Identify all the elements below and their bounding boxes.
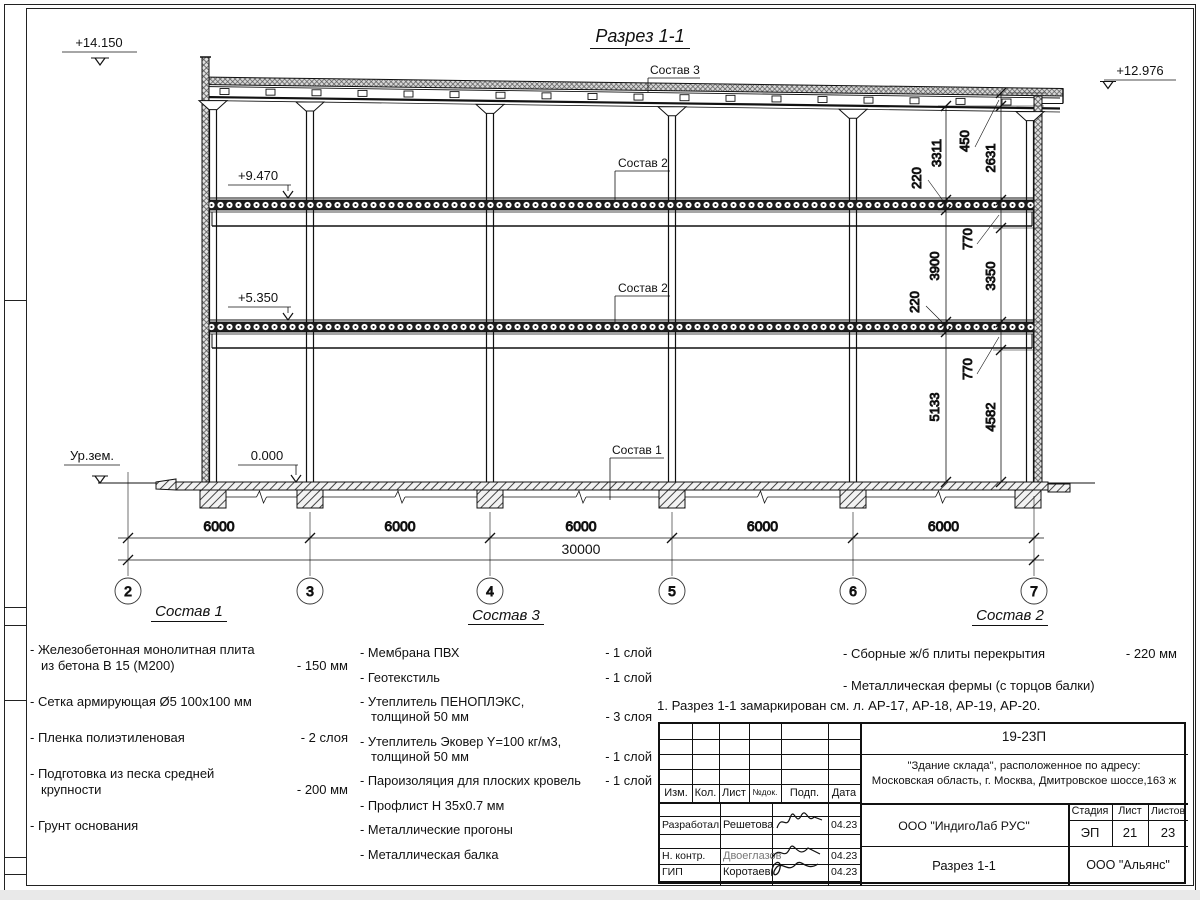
spec-item: - Металлические прогоны (360, 822, 652, 837)
stamp-name: Коротаев (723, 866, 771, 878)
spec-item-value: - 1 слой (597, 670, 652, 685)
elevation-label: +9.470 (238, 168, 278, 183)
purlin (680, 95, 689, 101)
stamp-header-col: Изм. (660, 787, 692, 799)
stamp-doc-number: 19-23П (860, 729, 1188, 744)
signature-icon (774, 810, 826, 834)
walls (200, 57, 1042, 490)
stamp-project-line1: "Здание склада", расположенное по адресу… (860, 760, 1188, 772)
stamp-line (828, 724, 829, 886)
vertical-dimension-label: 3311 (929, 139, 944, 167)
callout-label: Состав 2 (618, 281, 668, 295)
column-capital (658, 107, 686, 116)
footing (477, 490, 503, 508)
purlin (588, 93, 597, 99)
purlin (634, 94, 643, 100)
spec-item: - Утеплитель Эковер Y=100 кг/м3,толщиной… (360, 734, 652, 764)
margin-divider (4, 700, 26, 701)
drawing-sheet: Разрез 1-1 (0, 0, 1200, 900)
spec-item: - Геотекстиль- 1 слой (360, 670, 652, 685)
section-drawing: +14.150 +12.976 +9.470 +5.350 0.000 Ур.з… (0, 0, 1200, 620)
stamp-sheets-value: 23 (1148, 825, 1188, 840)
spec-item-text: - Металлическая фермы (с торцов балки) (843, 678, 1095, 694)
footing (200, 490, 226, 508)
break-mark (395, 491, 405, 503)
stamp-stage-value: ЭП (1068, 825, 1112, 840)
stamp-sheet-label: Лист (1112, 805, 1148, 817)
callouts: Состав 3 Состав 2 Состав 2 Состав 1 (610, 63, 700, 500)
stamp-header-col: Дата (828, 787, 860, 799)
stamp-line (660, 739, 860, 740)
stamp-line (860, 754, 1188, 755)
stamp-role: Разработал (662, 819, 719, 831)
stamp-stage-label: Стадия (1068, 805, 1112, 817)
stamp-drawing-name: Разрез 1-1 (860, 858, 1068, 873)
spec-items: - Мембрана ПВХ- 1 слой- Геотекстиль- 1 с… (360, 645, 652, 862)
vertical-dimension-label: 3350 (983, 262, 998, 291)
vertical-dimension-label: 770 (960, 358, 975, 380)
stamp-role: Н. контр. (662, 850, 705, 862)
span-dimension-label: 6000 (747, 518, 778, 534)
spec-item-text: - Профлист Н 35х0.7 мм (360, 798, 504, 813)
vertical-dimension-label: 2631 (983, 144, 998, 173)
spec-item-value: - 1 слой (597, 645, 652, 660)
spec-item-text: - Мембрана ПВХ (360, 645, 459, 660)
spec-block-sostav3: Состав 3 - Мембрана ПВХ- 1 слой- Геотекс… (360, 608, 652, 871)
roof (202, 77, 1063, 112)
stamp-name: Решетова (723, 819, 773, 831)
spec-item: - Подготовка из песка среднейкрупности- … (30, 766, 348, 798)
spec-item: - Утеплитель ПЕНОПЛЭКС,толщиной 50 мм- 3… (360, 694, 652, 724)
spec-heading: Состав 3 (360, 608, 652, 625)
axis-number: 4 (486, 583, 494, 599)
spec-item-text: - Металлическая балка (360, 847, 499, 862)
stamp-date: 04.23 (831, 866, 857, 878)
stamp-sheets-label: Листов (1148, 805, 1188, 817)
spec-item: - Профлист Н 35х0.7 мм (360, 798, 652, 813)
spec-item-value: - 150 мм (289, 658, 348, 674)
spec-item-value: - 3 слоя (597, 709, 652, 724)
vertical-dimension-label: 220 (909, 167, 924, 189)
purlin (910, 98, 919, 104)
callout-label: Состав 3 (650, 63, 700, 77)
spec-item-text: - Геотекстиль (360, 670, 443, 685)
span-dimension-label: 6000 (203, 518, 234, 534)
spec-item: - Металлическая балка (360, 847, 652, 862)
stamp-header-col: Лист (719, 787, 749, 799)
purlin (220, 89, 229, 95)
stamp-line (660, 784, 860, 785)
vertical-dimension-label: 770 (960, 228, 975, 250)
spec-item-text: - Грунт основания (30, 818, 138, 834)
stamp-header-col: Подп. (781, 787, 828, 799)
ground-level-label: Ур.зем. (70, 448, 114, 463)
spec-item-value: - 2 слоя (293, 730, 348, 746)
purlin (312, 90, 321, 96)
stamp-role: ГИП (662, 866, 683, 878)
break-mark (936, 491, 946, 503)
spec-item-text: - Утеплитель ПЕНОПЛЭКС,толщиной 50 мм (360, 694, 524, 724)
span-dimension-label: 6000 (928, 518, 959, 534)
spec-item-value: - 220 мм (1118, 646, 1177, 662)
purlin (496, 92, 505, 98)
drawing-note: 1. Разрез 1-1 замаркирован см. л. АР-17,… (657, 698, 1040, 713)
title-block: Изм.Кол.Лист№док.Подп.Дата Разработал Ре… (658, 722, 1186, 884)
spec-block-sostav2: Состав 2 - Сборные ж/б плиты перекрытия-… (843, 608, 1177, 710)
callout-label: Состав 1 (612, 443, 662, 457)
spec-item: - Пароизоляция для плоских кровель- 1 сл… (360, 773, 652, 788)
footing (840, 490, 866, 508)
spec-item-text: - Пленка полиэтиленовая (30, 730, 185, 746)
axis-number: 2 (124, 583, 132, 599)
stamp-line (660, 769, 860, 770)
spec-item: - Металлическая фермы (с торцов балки) (843, 678, 1177, 694)
axis-number: 6 (849, 583, 857, 599)
spec-item: - Грунт основания (30, 818, 348, 834)
stamp-project-line2: Московская область, г. Москва, Дмитровск… (860, 775, 1188, 787)
total-dimension-label: 30000 (562, 541, 601, 557)
spec-item-text: - Сетка армирующая Ø5 100х100 мм (30, 694, 252, 710)
stamp-line (860, 846, 1188, 847)
margin-divider (4, 625, 26, 626)
spec-item-text: - Металлические прогоны (360, 822, 513, 837)
margin-divider (4, 857, 26, 858)
spec-items: - Железобетонная монолитная плитаиз бето… (30, 642, 348, 834)
spec-item-text: - Железобетонная монолитная плитаиз бето… (30, 642, 255, 674)
elevation-label: +12.976 (1116, 63, 1163, 78)
stamp-date: 04.23 (831, 850, 857, 862)
axis-number: 7 (1030, 583, 1038, 599)
purlin (956, 98, 965, 104)
stamp-line (660, 881, 860, 882)
spec-item: - Пленка полиэтиленовая- 2 слоя (30, 730, 348, 746)
vertical-dimension-label: 4582 (983, 403, 998, 432)
footing (659, 490, 685, 508)
stamp-line (660, 754, 860, 755)
purlin (358, 90, 367, 96)
stamp-header-col: Кол. (692, 787, 719, 799)
spec-item: - Мембрана ПВХ- 1 слой (360, 645, 652, 660)
spec-item-text: - Сборные ж/б плиты перекрытия (843, 646, 1045, 662)
spec-item-text: - Подготовка из песка среднейкрупности (30, 766, 214, 798)
spec-item-value: - 200 мм (289, 782, 348, 798)
dims-bottom: 60006000600060006000 30000 234567 (115, 472, 1047, 604)
spec-heading: Состав 1 (30, 604, 348, 622)
break-mark (758, 491, 768, 503)
stamp-line (660, 834, 860, 835)
stamp-line (660, 864, 860, 865)
spec-block-sostav1: Состав 1 - Железобетонная монолитная пли… (30, 604, 348, 854)
elevation-label: +5.350 (238, 290, 278, 305)
floor-slab (209, 198, 1034, 226)
purlin (772, 96, 781, 102)
floor-slab (209, 320, 1034, 348)
stamp-sheet-value: 21 (1112, 825, 1148, 840)
purlin (450, 92, 459, 98)
floor-slabs (209, 198, 1034, 348)
footing (1015, 490, 1041, 508)
signature-icon (768, 856, 826, 884)
stamp-line (660, 816, 860, 817)
spec-heading-text: Состав 2 (972, 608, 1048, 626)
margin-divider (4, 874, 26, 875)
vertical-dimension-label: 450 (957, 130, 972, 152)
spec-item: - Железобетонная монолитная плитаиз бето… (30, 642, 348, 674)
stamp-line (660, 802, 860, 804)
span-dimension-label: 6000 (565, 518, 596, 534)
break-mark (576, 491, 586, 503)
vertical-dimension-label: 220 (907, 291, 922, 313)
column-capital (296, 102, 324, 111)
spec-item-text: - Пароизоляция для плоских кровель (360, 773, 581, 788)
column-capital (839, 109, 867, 118)
spec-items: - Сборные ж/б плиты перекрытия- 220 мм- … (843, 646, 1177, 694)
stamp-line (720, 802, 721, 886)
axis-number: 5 (668, 583, 676, 599)
purlin (404, 91, 413, 97)
purlin (266, 89, 275, 95)
stamp-date: 04.23 (831, 819, 857, 831)
column-capital (476, 104, 504, 113)
spec-item: - Сетка армирующая Ø5 100х100 мм (30, 694, 348, 710)
footing (297, 490, 323, 508)
hollow-core-slab (209, 322, 1034, 332)
spec-item-value: - 1 слой (597, 773, 652, 788)
elevation-label: +14.150 (75, 35, 122, 50)
purlin (726, 95, 735, 101)
stamp-header-col: №док. (749, 787, 781, 797)
spec-item-text: - Утеплитель Эковер Y=100 кг/м3,толщиной… (360, 734, 561, 764)
spec-item-value: - 1 слой (597, 749, 652, 764)
vertical-dimension-label: 3900 (927, 252, 942, 281)
span-dimension-label: 6000 (384, 518, 415, 534)
stamp-line (660, 848, 860, 849)
stamp-line (1068, 820, 1188, 821)
hollow-core-slab (209, 200, 1034, 210)
dims-right: 331122039002205133 450263177033507704582 (907, 88, 1046, 487)
sheet-edge-shadow (0, 890, 1200, 900)
purlin (818, 97, 827, 103)
vertical-dimension-label: 5133 (927, 393, 942, 422)
callout-label: Состав 2 (618, 156, 668, 170)
spec-heading-text: Состав 3 (468, 608, 544, 625)
stamp-customer: ООО "Альянс" (1068, 858, 1188, 872)
spec-item: - Сборные ж/б плиты перекрытия- 220 мм (843, 646, 1177, 662)
spec-heading: Состав 2 (843, 608, 1177, 626)
purlin (542, 93, 551, 99)
axis-number: 3 (306, 583, 314, 599)
elevation-label: 0.000 (251, 448, 284, 463)
spec-heading-text: Состав 1 (151, 604, 227, 622)
stamp-company: ООО "ИндигоЛаб РУС" (860, 819, 1068, 833)
break-mark (257, 491, 267, 503)
purlin (864, 97, 873, 103)
